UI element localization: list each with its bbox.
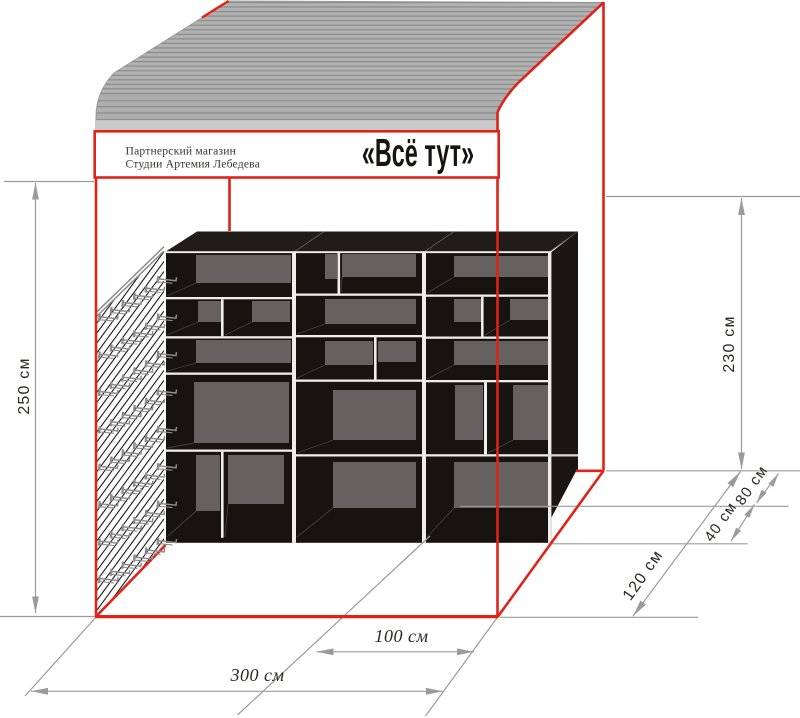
svg-text:300 см: 300 см bbox=[230, 665, 285, 685]
svg-text:Партнерский магазин: Партнерский магазин bbox=[126, 145, 237, 158]
svg-text:100 см: 100 см bbox=[375, 626, 429, 646]
svg-text:«Всё тут»: «Всё тут» bbox=[362, 131, 474, 175]
svg-text:250 см: 250 см bbox=[16, 357, 33, 414]
svg-text:230 см: 230 см bbox=[721, 315, 738, 372]
svg-text:Студии Артемия Лебедева: Студии Артемия Лебедева bbox=[126, 157, 261, 170]
